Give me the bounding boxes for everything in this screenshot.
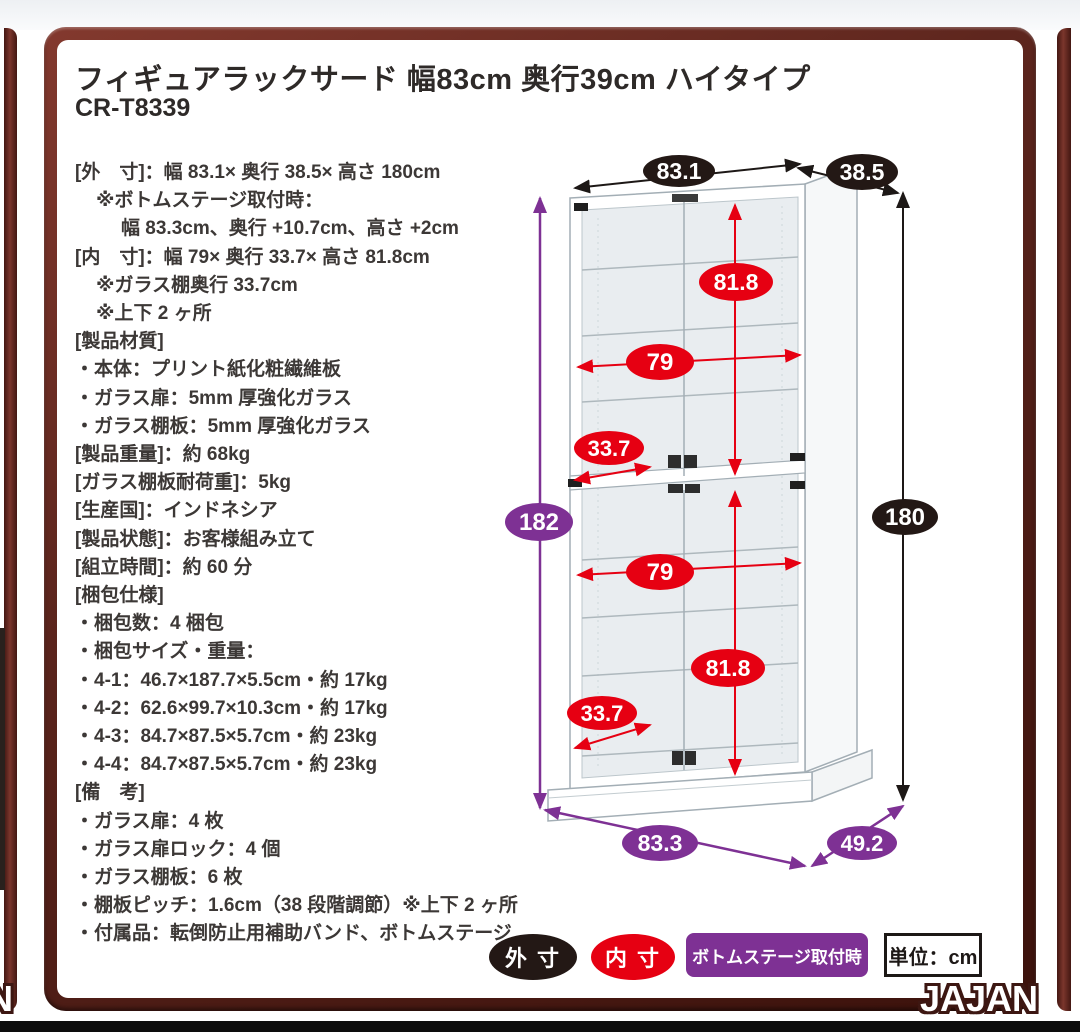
product-card: フィギュアラックサード 幅83cm 奥行39cm ハイタイプ CR-T8339 … <box>57 40 1023 998</box>
door-lock <box>790 453 805 461</box>
svg-text:83.1: 83.1 <box>657 158 702 184</box>
door-handle <box>668 455 681 468</box>
spec-line: [製品状態]：お客様組み立て <box>75 526 523 554</box>
spec-line: [梱包仕様] <box>75 582 523 610</box>
dimension-diagram: 83.1 38.5 180 182 81.8 81.8 79 79 33.7 <box>500 140 980 930</box>
bottom-black-bar <box>0 1021 1080 1032</box>
door-handle <box>672 194 698 202</box>
spec-line: [内 寸]：幅 79× 奥行 33.7× 高さ 81.8cm <box>75 244 523 272</box>
page-top-band <box>0 0 1080 30</box>
left-neighbor-frame-fragment <box>4 28 17 1011</box>
door-lock <box>790 481 805 489</box>
svg-text:182: 182 <box>519 509 559 536</box>
spec-line: ・4-3：84.7×87.5×5.7cm・約 23kg <box>75 723 523 751</box>
spec-line: ・ガラス棚板：5mm 厚強化ガラス <box>75 413 523 441</box>
spec-line: ・ガラス棚板：6 枚 <box>75 864 523 892</box>
door-handle <box>668 484 683 493</box>
svg-text:33.7: 33.7 <box>588 436 631 461</box>
spec-line: ・梱包数：4 梱包 <box>75 610 523 638</box>
door-handle <box>672 751 683 765</box>
page-title: フィギュアラックサード 幅83cm 奥行39cm ハイタイプ <box>75 56 811 98</box>
door-lock <box>568 479 582 487</box>
spec-line: [ガラス棚板耐荷重]：5kg <box>75 469 523 497</box>
spec-line: [製品重量]：約 68kg <box>75 441 523 469</box>
svg-text:81.8: 81.8 <box>706 655 751 681</box>
spec-line: ※ガラス棚奥行 33.7cm <box>75 272 523 300</box>
spec-line: [生産国]：インドネシア <box>75 497 523 525</box>
svg-text:180: 180 <box>885 504 925 531</box>
jajan-logo-fragment: N <box>0 978 13 1020</box>
spec-line: [外 寸]：幅 83.1× 奥行 38.5× 高さ 180cm <box>75 159 523 187</box>
svg-text:49.2: 49.2 <box>841 831 884 856</box>
product-spec-image: { "header": { "title": "フィギュアラックサード 幅83c… <box>0 0 1080 1032</box>
legend-stage-badge: ボトムステージ取付時 <box>686 933 868 977</box>
spec-line: [組立時間]：約 60 分 <box>75 554 523 582</box>
legend-inner-badge: 内 寸 <box>591 934 675 980</box>
svg-text:38.5: 38.5 <box>840 159 885 185</box>
spec-line: ・棚板ピッチ：1.6cm（38 段階調節）※上下 2 ヶ所 <box>75 892 523 920</box>
jajan-logo: JAJAN <box>920 978 1038 1020</box>
door-handle <box>684 455 697 468</box>
door-handle <box>685 751 696 765</box>
right-neighbor-frame-fragment <box>1057 28 1071 1011</box>
spec-line: ・4-2：62.6×99.7×10.3cm・約 17kg <box>75 695 523 723</box>
spec-line: 幅 83.3cm、奥行 +10.7cm、高さ +2cm <box>75 215 523 243</box>
svg-text:79: 79 <box>647 349 674 376</box>
spec-line: ・4-4：84.7×87.5×5.7cm・約 23kg <box>75 751 523 779</box>
door-lock <box>574 203 588 211</box>
spec-line: ・ガラス扉：4 枚 <box>75 808 523 836</box>
spec-line: ※上下 2 ヶ所 <box>75 300 523 328</box>
spec-line: ・付属品：転倒防止用補助バンド、ボトムステージ <box>75 920 523 948</box>
door-handle <box>685 484 700 493</box>
left-neighbor-content-fragment <box>0 628 5 890</box>
product-card-frame: フィギュアラックサード 幅83cm 奥行39cm ハイタイプ CR-T8339 … <box>44 27 1036 1011</box>
spec-line: ・本体：プリント紙化粧繊維板 <box>75 356 523 384</box>
right-neighbor-content-fragment <box>1071 40 1080 998</box>
spec-line: ・梱包サイズ・重量： <box>75 638 523 666</box>
svg-text:33.7: 33.7 <box>581 701 624 726</box>
svg-text:83.3: 83.3 <box>638 830 683 856</box>
svg-text:79: 79 <box>647 559 674 586</box>
spec-line: ※ボトムステージ取付時： <box>75 187 523 215</box>
cabinet-side-panel <box>805 165 857 772</box>
model-number: CR-T8339 <box>75 94 190 123</box>
spec-line: ・ガラス扉ロック：4 個 <box>75 836 523 864</box>
spec-line: ・4-1：46.7×187.7×5.5cm・約 17kg <box>75 667 523 695</box>
spec-list: [外 寸]：幅 83.1× 奥行 38.5× 高さ 180cm ※ボトムステージ… <box>75 159 523 949</box>
svg-text:81.8: 81.8 <box>714 269 759 295</box>
spec-line: [備 考] <box>75 779 523 807</box>
unit-box: 単位：cm <box>884 933 982 977</box>
spec-line: [製品材質] <box>75 328 523 356</box>
legend-outer-badge: 外 寸 <box>489 934 577 980</box>
spec-line: ・ガラス扉：5mm 厚強化ガラス <box>75 385 523 413</box>
